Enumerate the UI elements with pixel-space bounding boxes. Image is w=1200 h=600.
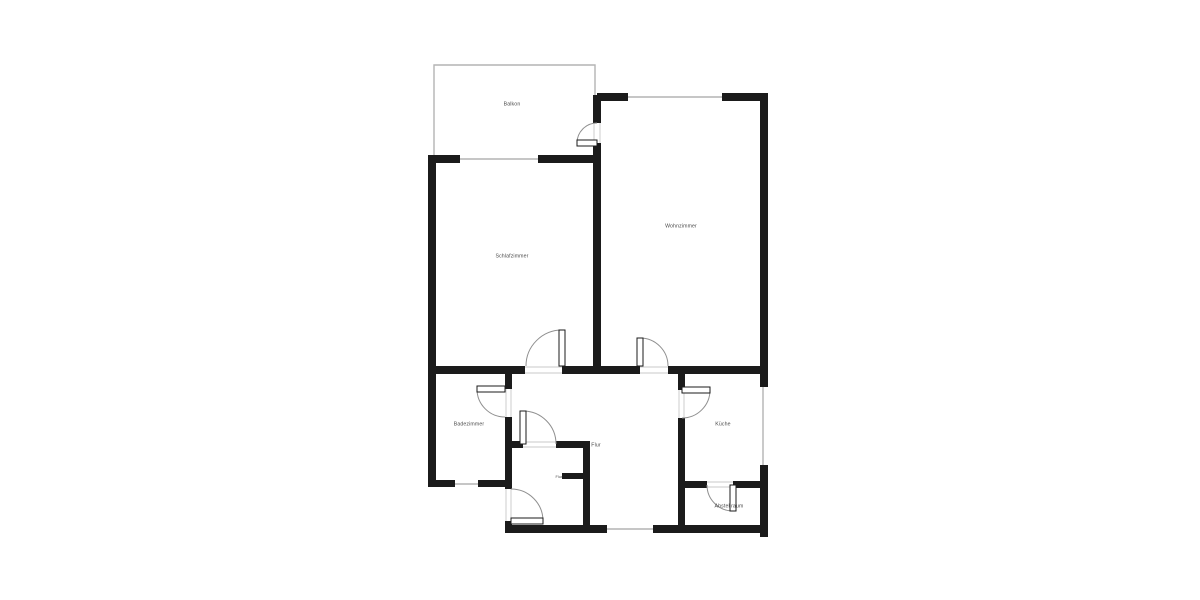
- door-entrance: [511, 489, 543, 524]
- wall-wohnzimmer-top-a: [597, 93, 628, 101]
- door-leaf: [477, 386, 505, 392]
- door-leaf: [511, 518, 543, 524]
- wall-kueche-left-a: [678, 366, 685, 390]
- door-leaf: [682, 387, 710, 393]
- wall-abstellraum-top-b: [733, 481, 768, 488]
- door-leaf: [637, 338, 643, 366]
- door-leaf: [559, 330, 565, 366]
- door-leaf: [730, 485, 736, 511]
- balcony-outline: [434, 65, 595, 159]
- wall-flur-stub: [562, 473, 590, 479]
- wall-middle-horizontal-b: [562, 366, 640, 374]
- door-jambs: [506, 123, 733, 521]
- wall-bottom-b: [653, 525, 768, 533]
- wall-outer-right-a: [760, 93, 768, 387]
- door-leaf: [577, 140, 597, 146]
- floorplan-canvas: Balkon Schlafzimmer Wohnzimmer Badezimme…: [0, 0, 1200, 600]
- windows: [455, 97, 763, 529]
- door-swing-arc: [523, 411, 556, 444]
- wall-middle-vertical-b: [593, 143, 601, 368]
- door-swing-arc: [640, 338, 668, 366]
- wall-schlafzimmer-top-a: [428, 155, 460, 163]
- door-swing-arc: [477, 389, 505, 417]
- wall-abstellraum-top-a: [678, 481, 707, 488]
- door-swing-arc: [682, 390, 710, 418]
- door-schlafzimmer: [526, 330, 565, 366]
- door-flur: [520, 411, 556, 444]
- wall-schlafzimmer-top-b: [538, 155, 601, 163]
- door-leaf: [520, 411, 526, 444]
- door-abstellraum: [707, 485, 736, 511]
- wall-badezimmer-right-b: [505, 417, 512, 489]
- door-swing-arc: [511, 489, 543, 521]
- floorplan-drawing: [0, 0, 1200, 600]
- door-swing-arc: [707, 485, 733, 511]
- wall-badezimmer-right-a: [505, 366, 512, 389]
- wall-badezimmer-bottom-b: [478, 480, 512, 487]
- door-badezimmer: [477, 386, 505, 417]
- door-wohnzimmer: [637, 338, 668, 366]
- wall-kueche-left-b: [678, 418, 685, 533]
- wall-outer-left: [428, 155, 436, 487]
- door-swing-arc: [526, 330, 562, 366]
- door-kueche: [682, 387, 710, 418]
- wall-badezimmer-bottom-a: [428, 480, 455, 487]
- wall-flur-right: [583, 441, 590, 533]
- wall-bottom-a: [505, 525, 607, 533]
